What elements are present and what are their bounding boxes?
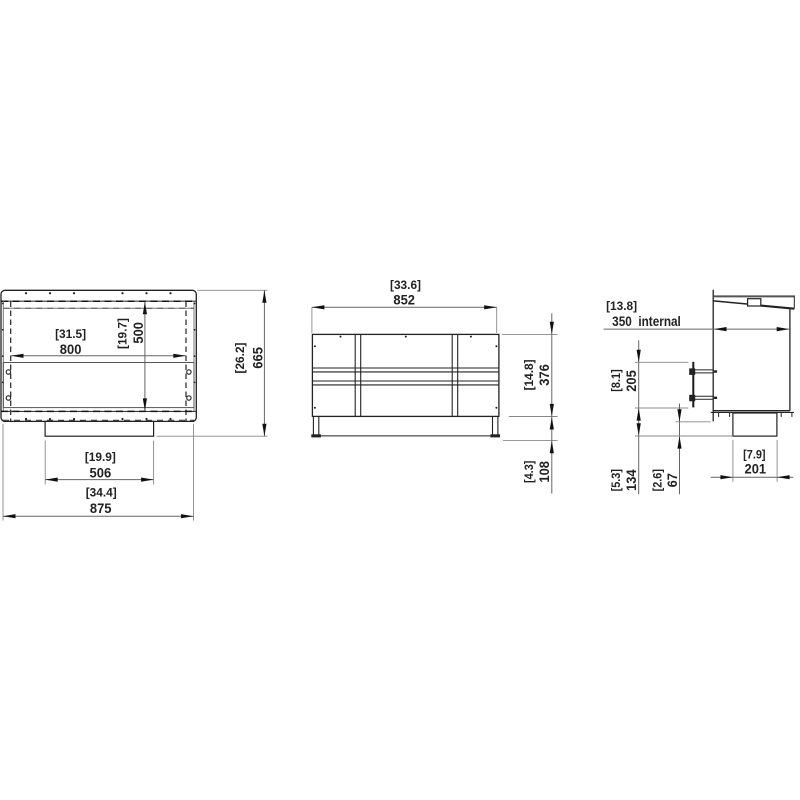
- svg-text:852: 852: [393, 293, 415, 308]
- svg-text:108: 108: [537, 461, 552, 483]
- svg-text:[14.8]: [14.8]: [522, 359, 536, 390]
- svg-text:500: 500: [131, 322, 146, 344]
- svg-text:[8.1]: [8.1]: [609, 369, 623, 391]
- svg-text:[34.4]: [34.4]: [86, 486, 117, 500]
- svg-text:[26.2]: [26.2]: [233, 343, 247, 374]
- svg-text:67: 67: [665, 473, 680, 487]
- svg-text:875: 875: [90, 501, 112, 516]
- svg-text:[19.9]: [19.9]: [85, 450, 116, 464]
- svg-text:134: 134: [624, 469, 639, 491]
- svg-text:506: 506: [90, 466, 112, 481]
- svg-text:[5.3]: [5.3]: [609, 469, 623, 491]
- svg-text:350 internal: 350 internal: [612, 314, 681, 329]
- svg-text:800: 800: [60, 342, 82, 357]
- svg-text:[31.5]: [31.5]: [55, 327, 86, 341]
- svg-text:[7.9]: [7.9]: [743, 447, 765, 461]
- svg-text:205: 205: [624, 370, 639, 392]
- svg-text:[19.7]: [19.7]: [115, 318, 129, 349]
- svg-text:[2.6]: [2.6]: [650, 469, 664, 491]
- svg-text:[33.6]: [33.6]: [390, 278, 421, 292]
- svg-text:201: 201: [745, 462, 767, 477]
- svg-text:376: 376: [537, 364, 552, 386]
- svg-text:[4.3]: [4.3]: [522, 461, 536, 483]
- svg-text:[13.8]: [13.8]: [606, 299, 637, 313]
- svg-text:665: 665: [251, 347, 266, 369]
